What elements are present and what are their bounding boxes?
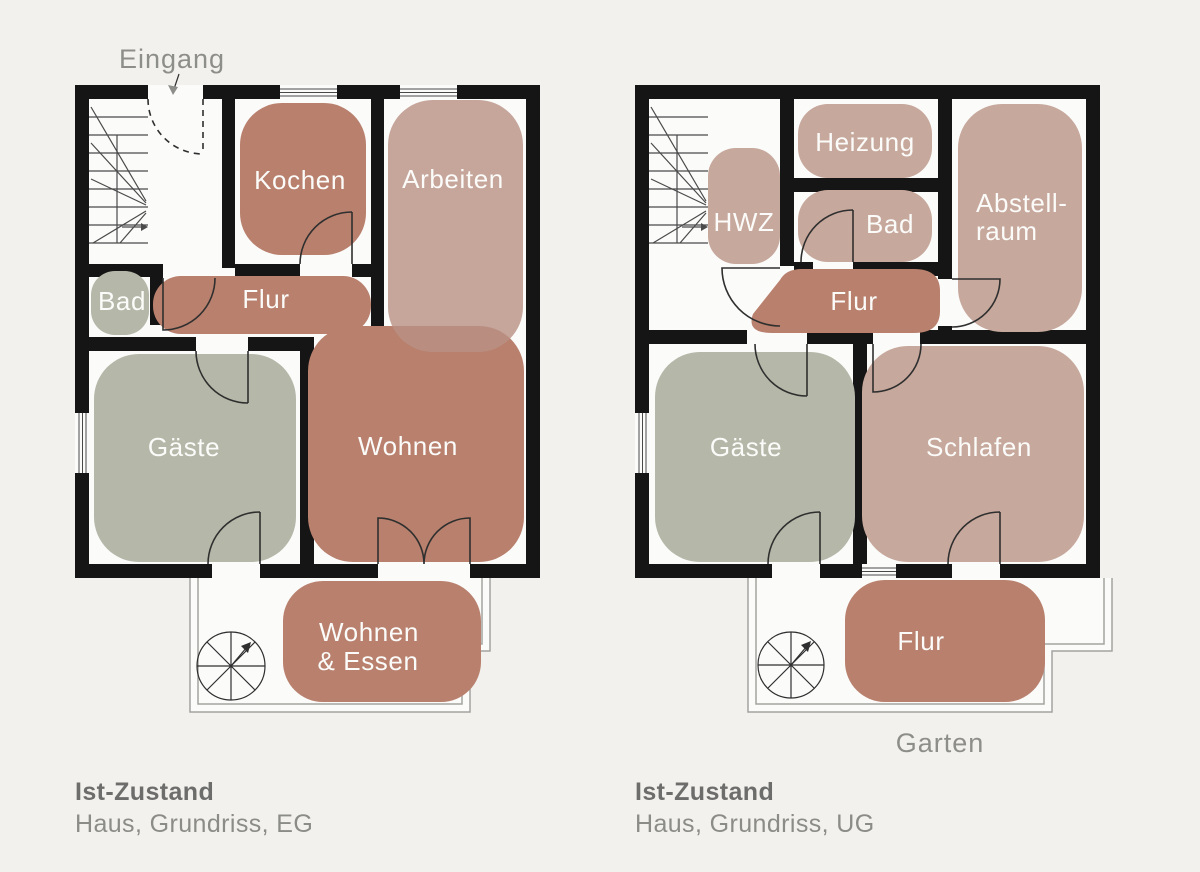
room-label-wohnen-essen-2: & Essen bbox=[317, 646, 418, 676]
caption-eg: Ist-Zustand Haus, Grundriss, EG bbox=[75, 778, 313, 838]
room-label-bad: Bad bbox=[98, 286, 146, 316]
room-label-gaeste: Gäste bbox=[148, 432, 220, 462]
wall bbox=[635, 85, 1100, 99]
room-label-kochen: Kochen bbox=[254, 165, 346, 195]
wall bbox=[794, 178, 938, 192]
wall bbox=[1086, 85, 1100, 578]
caption-title: Ist-Zustand bbox=[635, 778, 774, 806]
wall bbox=[337, 85, 400, 99]
wall bbox=[352, 264, 371, 277]
room-label-schlafen: Schlafen bbox=[926, 432, 1032, 462]
wall bbox=[470, 564, 540, 578]
wall bbox=[896, 564, 952, 578]
entrance-label: Eingang bbox=[119, 44, 225, 74]
floorplan-eg: Kochen Arbeiten Bad Flur Gäste Wohnen Wo… bbox=[75, 44, 540, 838]
caption-subtitle: Haus, Grundriss, UG bbox=[635, 810, 875, 838]
room-label-hwz: HWZ bbox=[714, 207, 775, 237]
room-label-abstellraum-2: raum bbox=[976, 216, 1038, 246]
room-label-heizung: Heizung bbox=[815, 127, 915, 157]
room-label-arbeiten: Arbeiten bbox=[402, 164, 504, 194]
wall bbox=[635, 85, 649, 413]
wall bbox=[75, 85, 89, 413]
room-label-gaeste: Gäste bbox=[710, 432, 782, 462]
spiral-stair bbox=[758, 632, 824, 698]
wall bbox=[75, 473, 89, 578]
wall bbox=[75, 564, 212, 578]
room-label-flur: Flur bbox=[830, 286, 877, 316]
wall bbox=[938, 330, 1086, 344]
spiral-stair bbox=[197, 632, 265, 700]
floorplan-ug: Heizung HWZ Bad Abstell- raum Flur Gäste… bbox=[635, 85, 1112, 838]
caption-ug: Ist-Zustand Haus, Grundriss, UG bbox=[635, 778, 875, 838]
floor-plan-canvas: Kochen Arbeiten Bad Flur Gäste Wohnen Wo… bbox=[0, 0, 1200, 872]
wall bbox=[526, 85, 540, 578]
room-label-abstellraum-1: Abstell- bbox=[976, 188, 1068, 218]
zone-flur-terrasse bbox=[845, 580, 1045, 702]
wall bbox=[260, 564, 378, 578]
room-label-flur-terrasse: Flur bbox=[897, 626, 944, 656]
room-label-wohnen-essen-1: Wohnen bbox=[319, 617, 419, 647]
wall bbox=[371, 99, 384, 350]
wall bbox=[938, 99, 952, 279]
wall bbox=[222, 99, 235, 268]
wall bbox=[203, 85, 280, 99]
wall bbox=[635, 473, 649, 578]
wall bbox=[1000, 564, 1100, 578]
room-label-bad: Bad bbox=[866, 209, 914, 239]
room-label-wohnen: Wohnen bbox=[358, 431, 458, 461]
wall bbox=[820, 564, 862, 578]
zone-hwz bbox=[708, 148, 780, 264]
garden-label: Garten bbox=[896, 728, 985, 758]
caption-title: Ist-Zustand bbox=[75, 778, 214, 806]
zone-arbeiten bbox=[388, 100, 523, 352]
room-label-flur: Flur bbox=[242, 284, 289, 314]
wall bbox=[235, 264, 300, 277]
wall bbox=[780, 99, 794, 266]
wall bbox=[649, 330, 747, 344]
caption-subtitle: Haus, Grundriss, EG bbox=[75, 810, 313, 838]
wall bbox=[635, 564, 772, 578]
wall bbox=[89, 337, 196, 351]
